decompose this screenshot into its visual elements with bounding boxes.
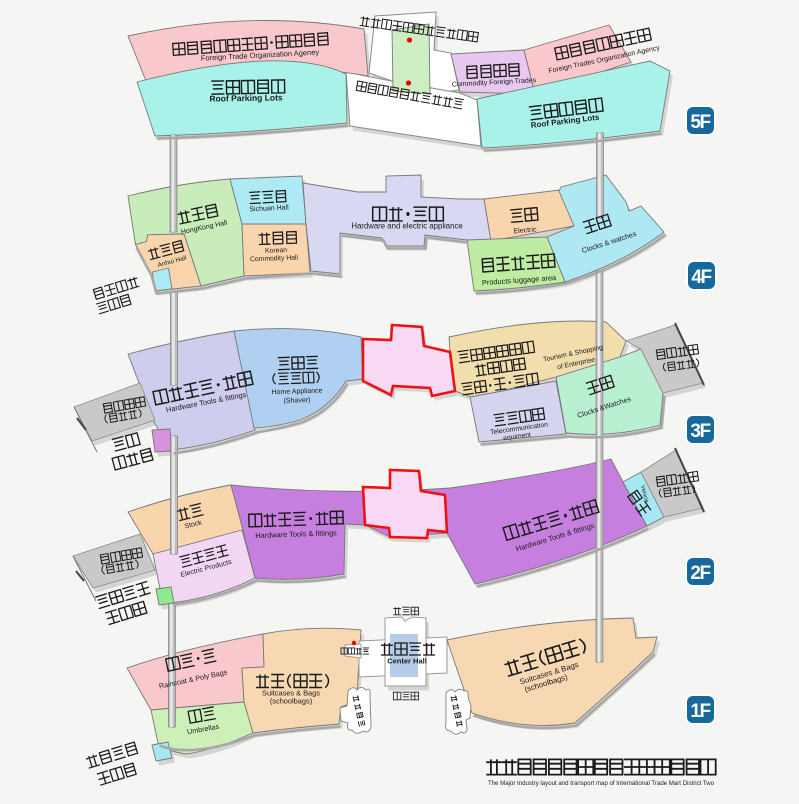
svg-text:Center Hall: Center Hall [387,657,427,666]
svg-text:Roof Parking Lots: Roof Parking Lots [209,92,283,103]
svg-text:(Shaver): (Shaver) [283,397,310,405]
svg-text:1F: 1F [690,701,710,722]
svg-text:(schoolbags): (schoolbags) [270,697,312,706]
svg-text:Hardware and electric applianc: Hardware and electric appliance [351,222,462,231]
svg-text:2F: 2F [690,563,710,584]
svg-text:5F: 5F [690,112,710,133]
svg-text:3F: 3F [690,421,710,442]
svg-text:4F: 4F [691,267,711,288]
svg-text:Korean: Korean [265,247,287,255]
svg-text:The Major Industry layout and: The Major Industry layout and transport … [488,780,715,787]
